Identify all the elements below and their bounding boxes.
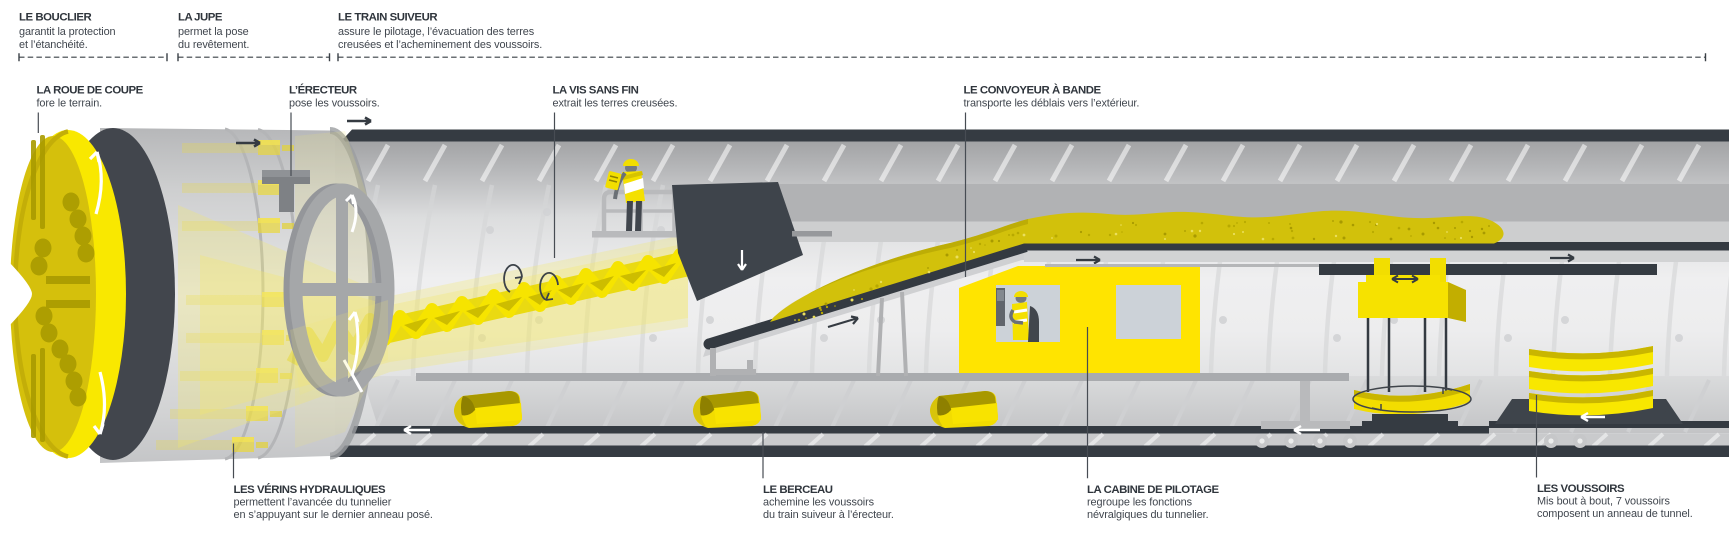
svg-text:achemine les voussoirs: achemine les voussoirs xyxy=(763,497,875,509)
svg-text:L’ÉRECTEUR: L’ÉRECTEUR xyxy=(289,83,357,96)
svg-text:composent un anneau de tunnel.: composent un anneau de tunnel. xyxy=(1537,508,1693,520)
svg-text:et l’étanchéité.: et l’étanchéité. xyxy=(19,39,88,51)
svg-text:LE BOUCLIER: LE BOUCLIER xyxy=(19,12,91,24)
svg-text:transporte les déblais vers l’: transporte les déblais vers l’extérieur. xyxy=(964,97,1140,109)
svg-text:permettent l’avancée du tunnel: permettent l’avancée du tunnelier xyxy=(234,497,392,509)
svg-text:LE BERCEAU: LE BERCEAU xyxy=(763,484,833,496)
svg-text:LA JUPE: LA JUPE xyxy=(178,12,223,24)
svg-text:extrait les terres creusées.: extrait les terres creusées. xyxy=(553,97,678,109)
svg-text:LA CABINE DE PILOTAGE: LA CABINE DE PILOTAGE xyxy=(1087,484,1220,496)
svg-text:LA VIS SANS FIN: LA VIS SANS FIN xyxy=(553,84,639,96)
svg-text:assure le pilotage, l’évacuati: assure le pilotage, l’évacuation des ter… xyxy=(338,26,535,38)
svg-text:regroupe les fonctions: regroupe les fonctions xyxy=(1087,497,1193,509)
svg-text:LES VOUSSOIRS: LES VOUSSOIRS xyxy=(1537,483,1625,495)
svg-text:du train suiveur à l’érecteur.: du train suiveur à l’érecteur. xyxy=(763,509,894,521)
svg-text:creusées et l’acheminement des: creusées et l’acheminement des voussoirs… xyxy=(338,39,542,51)
svg-text:garantit la protection: garantit la protection xyxy=(19,26,116,38)
svg-text:LES VÉRINS HYDRAULIQUES: LES VÉRINS HYDRAULIQUES xyxy=(234,483,387,496)
svg-text:fore le terrain.: fore le terrain. xyxy=(37,97,103,109)
svg-text:LE TRAIN SUIVEUR: LE TRAIN SUIVEUR xyxy=(338,12,437,24)
svg-text:névralgiques du tunnelier.: névralgiques du tunnelier. xyxy=(1087,509,1209,521)
svg-text:permet la pose: permet la pose xyxy=(178,26,249,38)
svg-text:pose les voussoirs.: pose les voussoirs. xyxy=(289,97,380,109)
svg-text:du revêtement.: du revêtement. xyxy=(178,39,249,51)
svg-text:LE CONVOYEUR À BANDE: LE CONVOYEUR À BANDE xyxy=(964,83,1102,96)
svg-text:en s’appuyant sur le dernier a: en s’appuyant sur le dernier anneau posé… xyxy=(234,509,433,521)
svg-text:LA ROUE DE COUPE: LA ROUE DE COUPE xyxy=(37,84,144,96)
svg-text:Mis bout à bout, 7 voussoirs: Mis bout à bout, 7 voussoirs xyxy=(1537,496,1670,508)
